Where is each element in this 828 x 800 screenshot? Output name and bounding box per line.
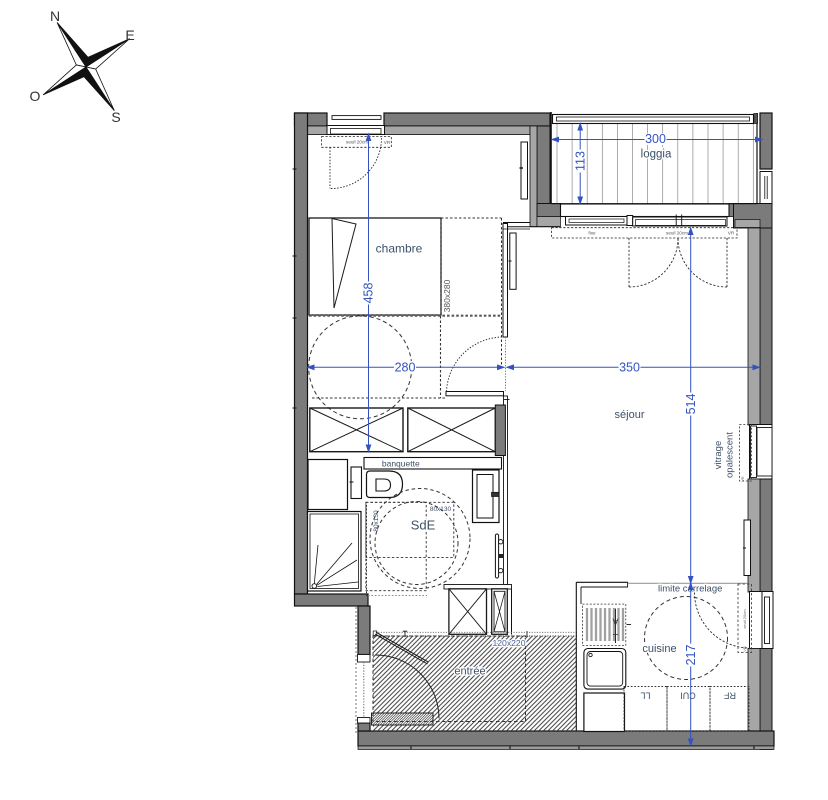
svg-text:A: A: [612, 617, 618, 627]
svg-text:300: 300: [645, 132, 666, 146]
svg-text:VR: VR: [384, 140, 391, 145]
svg-text:350: 350: [619, 361, 640, 375]
svg-text:opalescent: opalescent: [725, 432, 736, 478]
svg-text:N: N: [50, 8, 60, 24]
svg-text:chambre: chambre: [376, 242, 423, 256]
svg-text:280: 280: [395, 361, 416, 375]
svg-text:380x280: 380x280: [442, 279, 452, 312]
svg-text:SdE: SdE: [411, 518, 436, 533]
svg-text:O: O: [30, 88, 41, 104]
svg-text:fixe: fixe: [588, 231, 596, 236]
svg-text:E: E: [125, 27, 134, 43]
svg-text:514: 514: [684, 394, 698, 415]
svg-text:S: S: [111, 109, 120, 125]
svg-text:séjour: séjour: [615, 409, 645, 421]
svg-text:cuisine: cuisine: [642, 643, 676, 655]
svg-text:entrée: entrée: [454, 666, 485, 678]
svg-text:vitrage: vitrage: [713, 441, 724, 470]
svg-text:217: 217: [684, 645, 698, 666]
svg-text:120x220: 120x220: [493, 638, 526, 648]
svg-text:113: 113: [573, 151, 587, 171]
svg-text:loggia: loggia: [641, 149, 672, 161]
svg-text:VR: VR: [742, 646, 747, 652]
svg-text:LL: LL: [640, 691, 650, 701]
svg-text:VR: VR: [728, 231, 735, 236]
svg-text:seuil 20cm: seuil 20cm: [346, 140, 368, 145]
svg-text:RF: RF: [724, 691, 736, 701]
svg-text:seuil 20cm: seuil 20cm: [666, 231, 688, 236]
svg-text:T: T: [612, 627, 618, 637]
svg-text:VR: VR: [741, 476, 745, 482]
svg-text:CUI: CUI: [680, 691, 696, 701]
svg-text:banquette: banquette: [382, 458, 420, 468]
svg-text:458: 458: [362, 283, 376, 304]
svg-text:seuil 20cm: seuil 20cm: [742, 609, 747, 629]
